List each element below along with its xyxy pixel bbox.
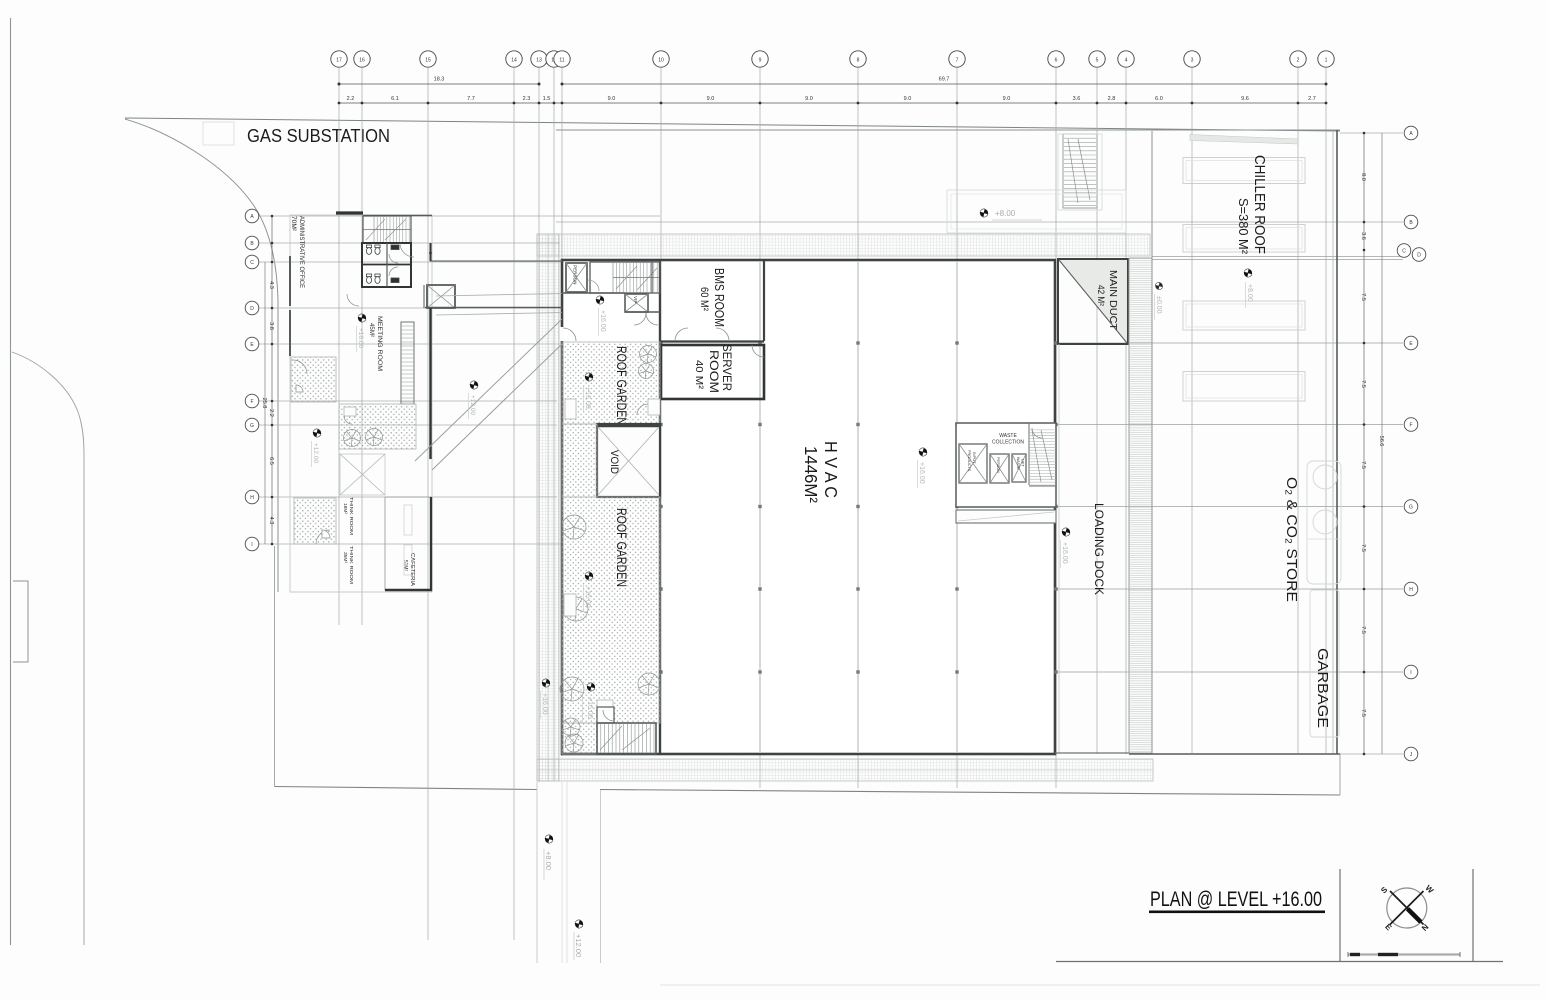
svg-text:GARBAGE: GARBAGE	[1314, 648, 1331, 728]
svg-text:THINK ROOM: THINK ROOM	[348, 497, 354, 535]
svg-text:C: C	[250, 260, 254, 266]
svg-text:SERVER: SERVER	[720, 344, 734, 391]
svg-text:7: 7	[956, 57, 959, 63]
svg-text:+8.00: +8.00	[544, 851, 553, 870]
svg-text:8.0: 8.0	[1360, 173, 1366, 181]
svg-text:+12.00: +12.00	[574, 934, 583, 957]
svg-text:13: 13	[536, 57, 542, 63]
svg-text:9: 9	[759, 57, 762, 63]
svg-text:CHILLER ROOF: CHILLER ROOF	[1251, 155, 1268, 254]
svg-text:18M²: 18M²	[342, 503, 348, 514]
svg-text:35M²: 35M²	[342, 552, 348, 563]
svg-text:9.6: 9.6	[1241, 96, 1249, 102]
svg-text:2.2: 2.2	[347, 96, 355, 102]
svg-text:7.5: 7.5	[1360, 709, 1366, 717]
svg-text:16: 16	[359, 57, 365, 63]
svg-text:+16.00: +16.00	[584, 586, 591, 608]
svg-text:1: 1	[1325, 57, 1328, 63]
svg-text:+8.00: +8.00	[995, 209, 1016, 218]
svg-text:PLAN @ LEVEL +16.00: PLAN @ LEVEL +16.00	[1150, 888, 1322, 911]
svg-text:+16.00: +16.00	[357, 328, 364, 348]
svg-text:+16.00: +16.00	[584, 387, 591, 409]
svg-text:+8.00: +8.00	[1246, 284, 1253, 302]
svg-text:I: I	[1410, 670, 1411, 676]
svg-text:LIFT: LIFT	[1021, 459, 1025, 467]
svg-text:4.3: 4.3	[268, 517, 274, 525]
svg-text:4.3: 4.3	[268, 281, 274, 289]
svg-text:THINK ROOM: THINK ROOM	[348, 546, 354, 584]
svg-text:2.3: 2.3	[523, 96, 531, 102]
svg-text:MEETING ROOM: MEETING ROOM	[376, 316, 383, 371]
svg-text:45M²: 45M²	[368, 323, 375, 337]
svg-text:9.0: 9.0	[608, 96, 616, 102]
svg-text:+16.00: +16.00	[541, 693, 548, 715]
svg-text:F: F	[1409, 423, 1412, 429]
svg-text:9.0: 9.0	[904, 96, 912, 102]
svg-text:25.8: 25.8	[261, 398, 267, 409]
svg-text:+16.00: +16.00	[586, 697, 593, 719]
svg-text:60 M²: 60 M²	[698, 287, 710, 311]
svg-text:10: 10	[658, 57, 664, 63]
svg-text:S=380 M²: S=380 M²	[1236, 198, 1251, 255]
svg-text:WASTE: WASTE	[1016, 457, 1020, 470]
svg-text:MAIN DUCT: MAIN DUCT	[1107, 270, 1119, 331]
svg-text:2.7: 2.7	[1308, 96, 1316, 102]
svg-text:6.0: 6.0	[1155, 96, 1163, 102]
svg-text:14: 14	[511, 57, 517, 63]
svg-text:5: 5	[1096, 57, 1099, 63]
svg-text:C: C	[1402, 249, 1406, 255]
svg-text:42 M²: 42 M²	[1096, 285, 1106, 306]
svg-text:COLLECTION: COLLECTION	[992, 440, 1024, 446]
svg-text:GAS SUBSTATION: GAS SUBSTATION	[247, 125, 390, 146]
svg-text:H V A C: H V A C	[821, 441, 841, 498]
svg-text:9.0: 9.0	[805, 96, 813, 102]
svg-text:9.0: 9.0	[707, 96, 715, 102]
svg-text:I: I	[251, 542, 252, 548]
svg-text:6.1: 6.1	[391, 96, 399, 102]
svg-text:BMS ROOM: BMS ROOM	[712, 268, 727, 327]
svg-text:6: 6	[1055, 57, 1058, 63]
svg-text:56.6: 56.6	[1378, 436, 1384, 447]
svg-text:LOADING DOCK: LOADING DOCK	[1092, 503, 1104, 595]
svg-text:+12.00: +12.00	[312, 443, 319, 463]
svg-text:11: 11	[559, 57, 564, 63]
svg-text:1446M²: 1446M²	[801, 446, 821, 503]
svg-text:2: 2	[1297, 57, 1300, 63]
svg-text:3: 3	[1191, 57, 1194, 63]
svg-text:H: H	[250, 495, 254, 501]
svg-text:PRODUCTS: PRODUCTS	[967, 450, 971, 472]
svg-text:ROOM: ROOM	[707, 350, 721, 393]
svg-text:ADMINISTRATIVE OFFICE: ADMINISTRATIVE OFFICE	[298, 216, 305, 288]
svg-text:D: D	[250, 306, 254, 312]
svg-text:7.5: 7.5	[1360, 461, 1366, 469]
svg-text:+16.00: +16.00	[1061, 542, 1068, 564]
svg-text:7.5: 7.5	[1360, 544, 1366, 552]
svg-text:2.8: 2.8	[1108, 96, 1116, 102]
svg-text:69.7: 69.7	[939, 77, 950, 83]
svg-text:±0.00: ±0.00	[1155, 296, 1162, 314]
svg-text:1.5: 1.5	[543, 96, 551, 102]
svg-text:VIP: VIP	[633, 296, 638, 303]
svg-text:6.5: 6.5	[268, 457, 274, 465]
svg-text:7.5: 7.5	[1360, 293, 1366, 301]
svg-text:15: 15	[425, 57, 431, 63]
svg-text:PERSON: PERSON	[573, 265, 578, 284]
svg-text:4: 4	[1125, 57, 1128, 63]
svg-text:F: F	[250, 399, 253, 405]
svg-text:D: D	[1417, 253, 1421, 259]
svg-text:51M²: 51M²	[402, 560, 408, 571]
svg-text:3.6: 3.6	[1073, 96, 1081, 102]
svg-text:17: 17	[336, 57, 342, 63]
svg-text:+12.00: +12.00	[469, 395, 476, 415]
svg-text:ROOF GARDEN: ROOF GARDEN	[614, 508, 629, 587]
svg-text:VOID: VOID	[608, 450, 620, 474]
svg-text:G: G	[250, 423, 254, 429]
svg-text:7.5: 7.5	[1360, 626, 1366, 634]
svg-text:PERSON: PERSON	[996, 457, 1000, 473]
svg-text:WASTE: WASTE	[999, 433, 1017, 439]
svg-text:H: H	[1409, 587, 1413, 593]
svg-text:9.0: 9.0	[1003, 96, 1011, 102]
svg-text:+16.00: +16.00	[599, 310, 606, 332]
svg-text:40 M²: 40 M²	[693, 360, 705, 390]
svg-text:3.6: 3.6	[1360, 232, 1366, 240]
svg-text:18.3: 18.3	[434, 77, 445, 83]
svg-text:7.5: 7.5	[1360, 380, 1366, 388]
svg-text:G: G	[1409, 505, 1413, 511]
svg-text:O₂ & CO₂ STORE: O₂ & CO₂ STORE	[1283, 477, 1300, 602]
svg-text:2.2: 2.2	[268, 409, 274, 417]
svg-text:8: 8	[857, 57, 860, 63]
svg-text:3.8: 3.8	[268, 322, 274, 330]
svg-text:70M²: 70M²	[290, 216, 297, 231]
svg-text:7.7: 7.7	[467, 96, 475, 102]
svg-text:ROOF GARDEN: ROOF GARDEN	[614, 346, 629, 425]
svg-text:INPUT: INPUT	[972, 452, 976, 464]
svg-text:+16.00: +16.00	[918, 462, 925, 484]
